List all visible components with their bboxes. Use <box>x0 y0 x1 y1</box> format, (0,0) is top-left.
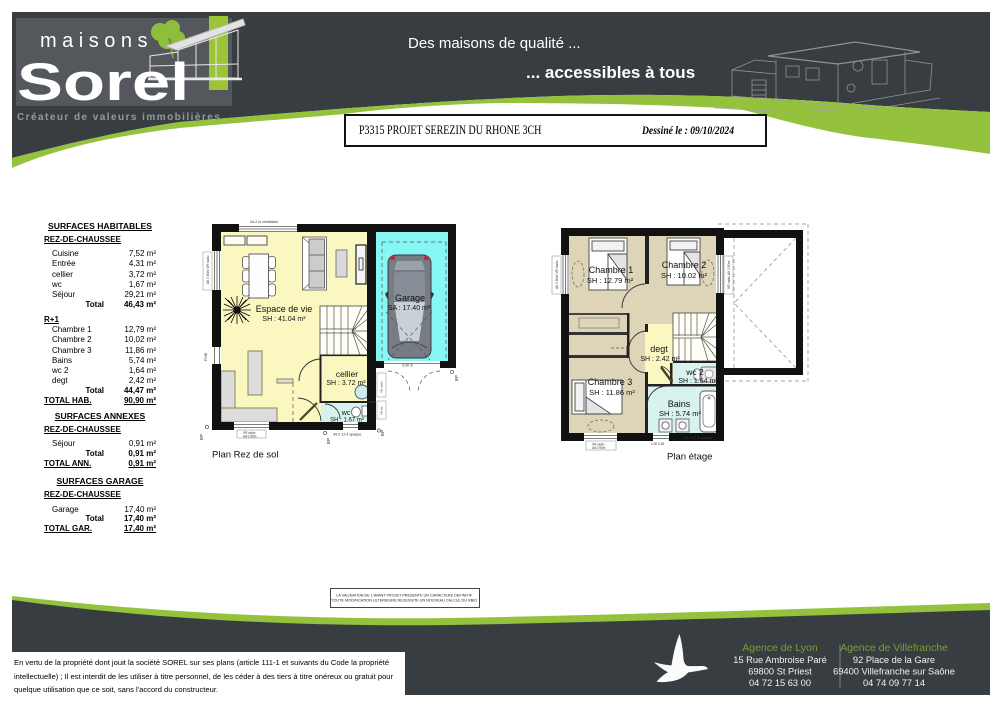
svg-text:44-2 12-4 opaque: 44-2 12-4 opaque <box>333 433 361 437</box>
svg-text:SH : 41.04 m²: SH : 41.04 m² <box>262 316 306 323</box>
svg-text:1.00 0.45: 1.00 0.45 <box>651 442 665 446</box>
svg-text:wc 2: wc 2 <box>685 367 704 377</box>
svg-text:wc: wc <box>341 410 351 417</box>
svg-text:SH : 5.74 m²: SH : 5.74 m² <box>659 409 702 418</box>
svg-text:SH : 3.72 m²: SH : 3.72 m² <box>326 380 366 387</box>
svg-text:SH : 1.64 m²: SH : 1.64 m² <box>678 378 718 385</box>
svg-text:FIXE: FIXE <box>204 352 208 361</box>
svg-text:3.00 m: 3.00 m <box>402 364 413 368</box>
svg-text:VR wc: VR wc <box>380 406 384 415</box>
svg-text:degt: degt <box>650 344 668 354</box>
svg-text:04 74 09 77 14: 04 74 09 77 14 <box>863 678 925 688</box>
svg-text:Chambre 2: Chambre 2 <box>662 260 707 270</box>
svg-text:EP: EP <box>380 430 385 436</box>
svg-text:SA : 17.40 m²: SA : 17.40 m² <box>388 305 431 312</box>
svg-text:Alt 0.90m VR radio: Alt 0.90m VR radio <box>555 260 559 289</box>
svg-text:44-2 m ventilation: 44-2 m ventilation <box>250 220 278 224</box>
svg-text:Des maisons de qualité ...: Des maisons de qualité ... <box>408 35 581 52</box>
svg-text:EP: EP <box>199 434 204 440</box>
svg-text:SH : 11.86 m²: SH : 11.86 m² <box>589 388 635 397</box>
svg-text:15 Rue Ambroise Paré: 15 Rue Ambroise Paré <box>733 655 827 665</box>
svg-text:Chambre 3: Chambre 3 <box>588 377 633 387</box>
svg-text:Alt 0.90m VR radio: Alt 0.90m VR radio <box>206 255 210 284</box>
svg-text:Créateur de valeurs immobilièr: Créateur de valeurs immobilières <box>17 112 221 123</box>
svg-text:44-2 12-6 opaque: 44-2 12-6 opaque <box>684 436 712 440</box>
svg-text:EP: EP <box>454 375 459 381</box>
svg-text:VR radio: VR radio <box>380 381 384 393</box>
svg-text:SH : 12.79 m²: SH : 12.79 m² <box>587 276 634 285</box>
svg-text:Bains: Bains <box>668 399 691 409</box>
svg-text:maisons: maisons <box>40 30 153 52</box>
svg-text:Alt 0.90m: Alt 0.90m <box>243 434 257 438</box>
svg-text:69400 Villefranche sur Saône: 69400 Villefranche sur Saône <box>833 667 955 677</box>
svg-text:EP: EP <box>326 438 331 444</box>
svg-text:SH : 2.42 m²: SH : 2.42 m² <box>640 356 680 363</box>
svg-text:Agence de Villefranche: Agence de Villefranche <box>840 642 948 654</box>
svg-text:Chambre 1: Chambre 1 <box>589 265 634 275</box>
svg-text:SH : 1.67 m²: SH : 1.67 m² <box>330 418 364 424</box>
svg-text:Plan Rez de sol: Plan Rez de sol <box>212 450 279 461</box>
svg-text:Plan étage: Plan étage <box>667 452 712 463</box>
svg-text:04 72 15 63 00: 04 72 15 63 00 <box>749 678 811 688</box>
svg-text:cellier: cellier <box>336 369 358 379</box>
svg-text:Sorel: Sorel <box>17 53 189 112</box>
svg-text:Alt 0.90m: Alt 0.90m <box>592 446 606 450</box>
svg-text:69800 St Priest: 69800 St Priest <box>748 667 812 677</box>
svg-text:SH : 10.02 m²: SH : 10.02 m² <box>661 271 708 280</box>
svg-text:Espace de vie: Espace de vie <box>256 304 313 314</box>
svg-text:... accessibles à tous: ... accessibles à tous <box>526 63 695 82</box>
svg-text:Agence de Lyon: Agence de Lyon <box>742 642 818 654</box>
svg-text:Garage: Garage <box>395 293 425 303</box>
svg-text:VR radio Alt 0.90m: VR radio Alt 0.90m <box>727 261 731 289</box>
svg-text:92 Place de la Gare: 92 Place de la Gare <box>853 655 935 665</box>
